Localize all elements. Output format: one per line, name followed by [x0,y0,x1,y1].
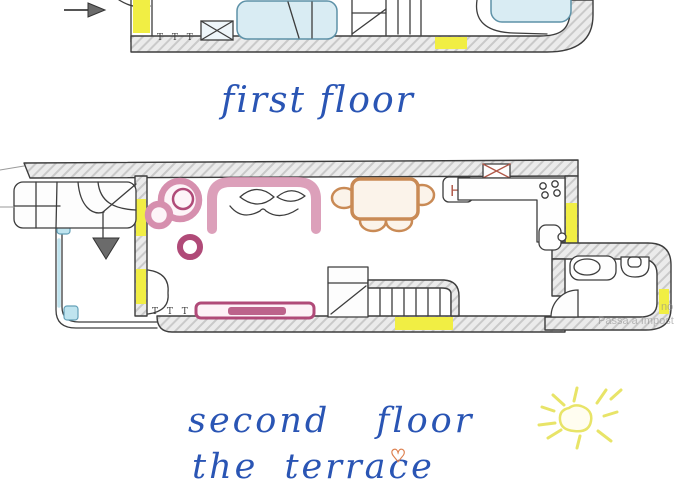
radiator-marks-second: T T T [152,307,191,317]
stairs-first-floor [352,0,421,35]
sun-icon [539,388,621,448]
winder-staircase [14,182,136,237]
nightstand [201,21,233,40]
first-floor-caption: first floor [221,80,415,121]
toilet [621,257,649,277]
first-floor-plan: T T T [64,0,593,52]
watermark-fragment-2: Passa a Impost [598,315,674,327]
stairs-down-arrow-icon [93,238,119,259]
lower-staircase [328,267,459,317]
radiator-marks-first: T T T [157,33,196,43]
range-hood [483,164,510,178]
sideboard [196,303,314,318]
armchair [148,181,199,226]
entry-arrow-icon [64,3,105,17]
blue-corner-lower [64,306,78,320]
bathtub [491,0,571,22]
floor-plan-sketch: T T T [0,0,700,500]
dining-table [352,179,418,219]
sink-tap [558,233,566,241]
pouf [180,237,200,257]
door-marker-bottom [395,317,453,330]
second-floor-plan: T T T [0,160,671,332]
bathroom-left-wall [552,259,565,296]
heart-icon: ♡ [390,446,406,467]
door-marker-hall-lower [136,269,146,304]
door-marker-hall-upper [136,199,146,236]
washbasin [570,256,616,280]
kitchen-counter [458,178,566,250]
door-marker-first-floor [435,37,467,49]
second-floor-caption: second floor [188,401,474,441]
bed [237,1,337,39]
dining-table-group [332,179,434,231]
sofa [212,182,316,229]
watermark-fragment-1: no [661,301,673,313]
kitchen-window-marker [566,203,577,247]
entry-door-marker [133,0,150,33]
